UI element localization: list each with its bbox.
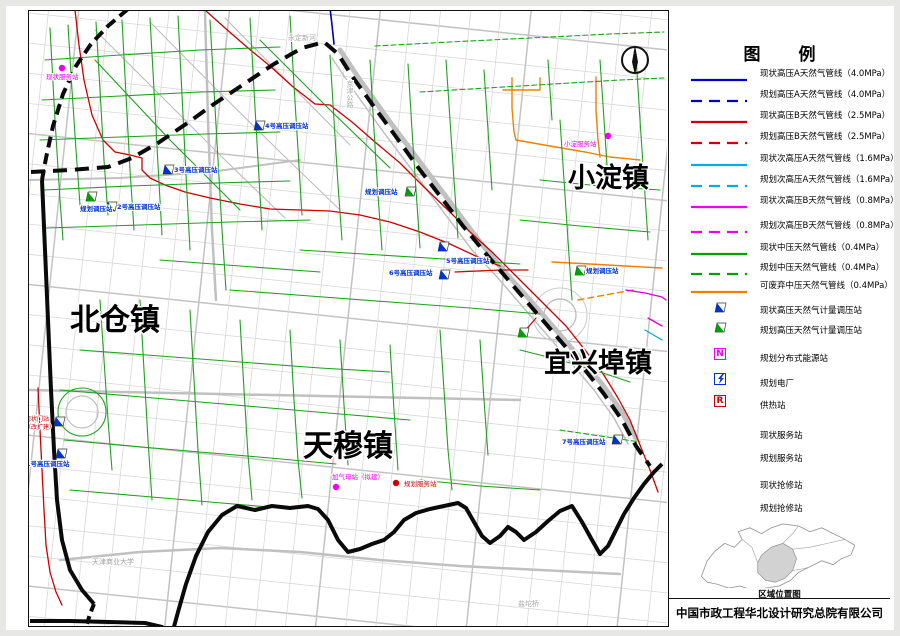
legend-icon-item: N规划分布式能源站 bbox=[669, 353, 890, 367]
legend-zbox-icon bbox=[714, 373, 730, 389]
pipeline bbox=[503, 78, 540, 90]
town-name-label: 宜兴埠镇 bbox=[544, 347, 652, 379]
legend-line-swatch bbox=[689, 264, 749, 274]
company-title-bar: 中国市政工程华北设计研究总院有限公司 bbox=[669, 598, 890, 627]
inset-inner-line bbox=[793, 539, 845, 549]
legend-line-swatch bbox=[689, 112, 749, 122]
pipeline bbox=[420, 480, 540, 490]
legend-line-item: 现状高压B天然气管线（2.5MPa） bbox=[669, 110, 890, 124]
legend-icon-item: 现状高压天然气计量调压站 bbox=[669, 305, 890, 319]
pipeline bbox=[512, 78, 516, 140]
legend-item-label: 现状中压天然气管线（0.4MPa） bbox=[760, 241, 884, 253]
legend-icon-item: 规划抢修站 bbox=[669, 503, 890, 517]
legend-icon-item: 规划电厂 bbox=[669, 378, 890, 392]
pipeline bbox=[626, 290, 666, 300]
pipeline bbox=[636, 56, 648, 240]
station-flag-icon bbox=[575, 266, 586, 275]
legend-line-swatch bbox=[689, 70, 749, 80]
legend-item-label: 规划抢修站 bbox=[760, 502, 803, 514]
legend-item-label: 规划高压A天然气管线（4.0MPa） bbox=[760, 88, 890, 100]
legend-dot-icon bbox=[714, 448, 730, 464]
legend-line-item: 现状次高压A天然气管线（1.6MPa） bbox=[669, 153, 890, 167]
station-label: 规划调压站 bbox=[586, 266, 619, 275]
pipeline bbox=[290, 16, 302, 215]
town-name-label: 天穆镇 bbox=[303, 429, 393, 464]
area-label: 天津商业大学 bbox=[92, 557, 134, 566]
inset-inner-line bbox=[793, 567, 810, 571]
inset-inner-line bbox=[742, 539, 758, 562]
legend-line-swatch bbox=[689, 91, 749, 101]
legend-line-swatch bbox=[689, 282, 749, 292]
flag-icon-svg bbox=[714, 300, 730, 316]
rbox-icon: R bbox=[714, 395, 726, 407]
pipeline bbox=[40, 132, 280, 140]
area-label: 永定新河 bbox=[288, 33, 316, 42]
line-swatch-svg bbox=[689, 160, 749, 170]
station-flag-icon bbox=[438, 242, 449, 251]
station-flag-icon bbox=[56, 449, 67, 458]
legend-panel: 图 例 现状高压A天然气管线（4.0MPa）规划高压A天然气管线（4.0MPa）… bbox=[668, 10, 890, 627]
major-road bbox=[60, 548, 620, 574]
legend-icon-item: R供热站 bbox=[669, 400, 890, 414]
legend-line-swatch bbox=[689, 244, 749, 254]
line-swatch-svg bbox=[689, 227, 749, 237]
legend-line-item: 现状次高压B天然气管线（0.8MPa） bbox=[669, 195, 890, 209]
station-flag-icon bbox=[518, 328, 529, 337]
station-flag-icon bbox=[439, 270, 450, 279]
lightning-shape bbox=[718, 374, 724, 384]
pipeline bbox=[600, 60, 608, 180]
legend-title: 图 例 bbox=[669, 40, 890, 65]
station-flag-icon bbox=[715, 303, 726, 312]
zbox-icon bbox=[714, 373, 726, 385]
major-road bbox=[332, 58, 628, 444]
station-label: 小淀服务站 bbox=[564, 139, 597, 148]
line-swatch-svg bbox=[689, 269, 749, 279]
area-label: 现状门站 bbox=[25, 415, 49, 423]
legend-item-label: 现状服务站 bbox=[760, 429, 803, 441]
station-label: 6号高压调压站 bbox=[389, 268, 433, 277]
legend-item-label: 规划分布式能源站 bbox=[760, 352, 828, 364]
legend-line-item: 规划次高压B天然气管线（0.8MPa） bbox=[669, 220, 890, 234]
legend-line-swatch bbox=[689, 176, 749, 186]
legend-line-swatch bbox=[689, 133, 749, 143]
pipeline bbox=[548, 60, 552, 120]
line-swatch-svg bbox=[689, 75, 749, 85]
pipeline bbox=[240, 320, 252, 500]
station-flag-icon bbox=[715, 323, 726, 332]
town-name-label: 小淀镇 bbox=[568, 162, 649, 194]
street-v bbox=[0, 0, 44, 636]
line-swatch-svg bbox=[689, 202, 749, 212]
pipeline bbox=[70, 490, 280, 508]
pipeline bbox=[42, 90, 275, 100]
legend-line-swatch bbox=[689, 155, 749, 165]
pipeline bbox=[190, 310, 202, 505]
pipeline bbox=[122, 20, 134, 230]
region-locator-inset-map bbox=[691, 522, 869, 588]
legend-flag-icon bbox=[714, 300, 730, 316]
station-label: 5号高压调压站 bbox=[446, 256, 490, 265]
area-label: 盐坨桥 bbox=[518, 599, 539, 608]
legend-nbox-icon: N bbox=[714, 348, 730, 364]
legend-item-label: 现状高压B天然气管线（2.5MPa） bbox=[760, 109, 890, 121]
legend-line-item: 规划中压天然气管线（0.4MPa） bbox=[669, 262, 890, 276]
pipeline bbox=[440, 330, 452, 490]
legend-line-item: 可废弃中压天然气管线（0.4MPa） bbox=[669, 280, 890, 294]
legend-item-label: 现状高压天然气计量调压站 bbox=[760, 304, 862, 316]
station-flag-icon bbox=[86, 192, 97, 201]
pipeline bbox=[290, 330, 302, 498]
station-label: 7号高压调压站 bbox=[562, 437, 606, 446]
flag-icon-svg bbox=[714, 320, 730, 336]
service-station-dot bbox=[333, 484, 339, 490]
station-label: 加气母站（拟建） bbox=[332, 472, 384, 481]
station-flag-icon bbox=[163, 165, 174, 174]
legend-flag-icon bbox=[714, 320, 730, 336]
station-label: 现状服务站 bbox=[46, 72, 79, 81]
street-v bbox=[175, 0, 342, 636]
region-locator-inset-svg bbox=[691, 522, 869, 588]
pipeline bbox=[75, 10, 500, 266]
legend-item-label: 现状次高压B天然气管线（0.8MPa） bbox=[760, 194, 899, 206]
pipeline bbox=[480, 340, 488, 455]
line-swatch-svg bbox=[689, 287, 749, 297]
line-swatch-svg bbox=[689, 96, 749, 106]
station-flag-icon bbox=[405, 187, 416, 196]
pipeline bbox=[46, 220, 310, 228]
legend-item-label: 规划中压天然气管线（0.4MPa） bbox=[760, 261, 884, 273]
street-v bbox=[0, 0, 14, 636]
legend-line-item: 规划高压B天然气管线（2.5MPa） bbox=[669, 131, 890, 145]
service-station-dot bbox=[605, 133, 611, 139]
line-swatch-svg bbox=[689, 138, 749, 148]
legend-rbox-icon: R bbox=[714, 395, 730, 411]
legend-item-label: 规划电厂 bbox=[760, 377, 794, 389]
legend-item-label: 现状次高压A天然气管线（1.6MPa） bbox=[760, 152, 899, 164]
station-label: 1号高压调压站 bbox=[26, 459, 70, 468]
station-label: 2号高压调压站 bbox=[117, 202, 161, 211]
service-station-dot bbox=[59, 65, 65, 71]
legend-item-label: 规划服务站 bbox=[760, 452, 803, 464]
pipeline bbox=[420, 78, 664, 92]
pipeline bbox=[596, 77, 600, 157]
legend-dot-icon bbox=[714, 498, 730, 514]
legend-line-item: 规划高压A天然气管线（4.0MPa） bbox=[669, 89, 890, 103]
legend-item-label: 规划次高压A天然气管线（1.6MPa） bbox=[760, 173, 899, 185]
legend-icon-item: 现状抢修站 bbox=[669, 480, 890, 494]
legend-item-label: 规划高压天然气计量调压站 bbox=[760, 324, 862, 336]
legend-item-label: 现状高压A天然气管线（4.0MPa） bbox=[760, 67, 890, 79]
legend-line-item: 规划次高压A天然气管线（1.6MPa） bbox=[669, 174, 890, 188]
line-swatch-svg bbox=[689, 181, 749, 191]
legend-dot-icon bbox=[714, 475, 730, 491]
pipeline bbox=[330, 8, 334, 44]
station-label: 规划调压站 bbox=[365, 187, 398, 196]
legend-line-swatch bbox=[689, 197, 749, 207]
legend-line-item: 现状高压A天然气管线（4.0MPa） bbox=[669, 68, 890, 82]
station-flag-icon bbox=[54, 417, 65, 426]
map-sheet-page: { "legend": { "title": "图 例", "line_item… bbox=[0, 0, 900, 636]
town-name-label: 北仓镇 bbox=[70, 303, 160, 338]
station-label: 规划服务站 bbox=[404, 479, 437, 488]
legend-item-label: 供热站 bbox=[760, 399, 786, 411]
legend-icon-item: 规划高压天然气计量调压站 bbox=[669, 325, 890, 339]
area-label: （改扩建） bbox=[25, 423, 55, 431]
legend-line-item: 现状中压天然气管线（0.4MPa） bbox=[669, 242, 890, 256]
nbox-icon: N bbox=[714, 348, 726, 360]
area-label: 京津公路 bbox=[346, 79, 354, 109]
legend-item-label: 规划高压B天然气管线（2.5MPa） bbox=[760, 130, 890, 142]
district-boundary bbox=[30, 621, 172, 634]
legend-icon-item: 规划服务站 bbox=[669, 453, 890, 467]
station-label: 4号高压调压站 bbox=[265, 121, 309, 130]
legend-dot-icon bbox=[714, 425, 730, 441]
legend-item-label: 规划次高压B天然气管线（0.8MPa） bbox=[760, 219, 899, 231]
lightning-icon bbox=[716, 374, 725, 384]
legend-item-label: 可废弃中压天然气管线（0.4MPa） bbox=[760, 279, 893, 291]
service-station-dot bbox=[393, 480, 399, 486]
line-swatch-svg bbox=[689, 249, 749, 259]
station-label: 规划调压站 bbox=[80, 204, 113, 213]
station-flag-icon bbox=[254, 121, 265, 130]
inset-highlight-district bbox=[758, 543, 797, 582]
district-boundary bbox=[42, 9, 128, 180]
legend-item-label: 现状抢修站 bbox=[760, 479, 803, 491]
legend-line-swatch bbox=[689, 222, 749, 232]
pipeline bbox=[648, 318, 662, 326]
pipeline bbox=[578, 290, 633, 300]
station-flag-icon bbox=[612, 435, 623, 444]
line-swatch-svg bbox=[689, 117, 749, 127]
major-road bbox=[30, 390, 520, 400]
legend-icon-item: 现状服务站 bbox=[669, 430, 890, 444]
pipeline bbox=[520, 220, 650, 232]
station-label: 3号高压调压站 bbox=[174, 165, 218, 174]
inset-inner-line bbox=[783, 526, 799, 543]
pipeline-ring bbox=[58, 388, 106, 436]
pipeline bbox=[64, 440, 336, 464]
